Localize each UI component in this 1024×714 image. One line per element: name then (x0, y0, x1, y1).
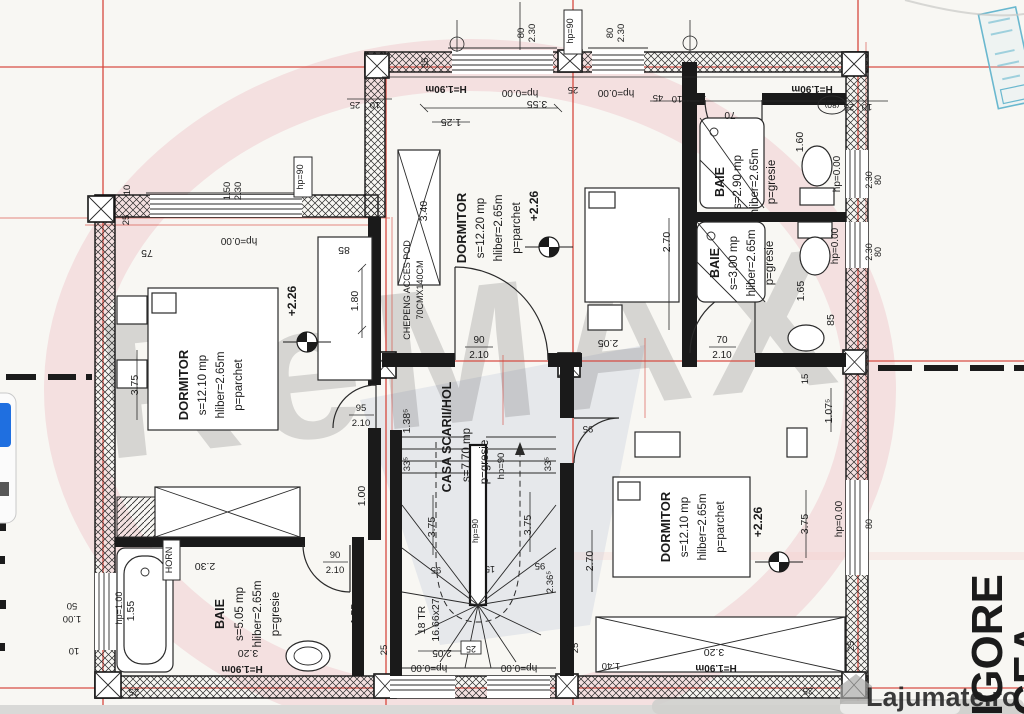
window-bottom-b (487, 676, 550, 698)
dim-label: 75 (141, 247, 153, 259)
room-height: hliber=2.65m (697, 494, 709, 561)
dim-label: 10 (122, 185, 133, 196)
dim-label: 95 (535, 560, 546, 571)
door-size: 2.10 (352, 418, 371, 429)
wardrobe-left (318, 237, 372, 380)
street-text-2: CEA (1005, 623, 1024, 714)
stair-count: 18 TR (416, 605, 428, 634)
dim-label: 2.05 (598, 337, 619, 349)
sill-label: hp=0.00 (597, 87, 634, 98)
stair-parapet-label: hp=90 (470, 519, 480, 543)
dim-label: 15 (696, 93, 707, 104)
door-size: 90 (330, 550, 341, 561)
dim-label: 1.40 (602, 660, 621, 671)
dim-label: 1.80 (349, 291, 361, 312)
sill-label: hp=0.00 (501, 87, 538, 98)
dim-label: 25 (568, 84, 579, 95)
dim-label: 10 (862, 101, 873, 112)
dim-label: 3.20 (704, 646, 725, 658)
sill-label: hp=0.00 (220, 235, 257, 246)
room-name: BAIE (708, 248, 722, 278)
chimney-label: HORN (164, 547, 174, 574)
headroom-label: H=1.90m (695, 662, 737, 673)
room-name: BAIE (713, 167, 727, 197)
radiator (787, 428, 807, 457)
dim-label: 3.75 (129, 375, 141, 396)
sill-label: hp=0.00 (410, 662, 447, 673)
dim-label: 1.50 (222, 182, 233, 201)
headroom-label: H=1.90m (425, 83, 467, 94)
window-size: 80 (516, 28, 527, 39)
dim-label: 35 (420, 58, 431, 69)
dim-label: 15 (485, 564, 495, 574)
sill-label: hp=0.00 (834, 500, 845, 537)
dim-label: 25 (129, 686, 140, 697)
dim-label: (80) (824, 100, 839, 110)
room-area: s=7.70 mp (461, 428, 473, 482)
door-size: 70 (724, 109, 736, 120)
dim-label: 2.10 (672, 93, 691, 104)
dim-label: 1.65 (795, 281, 807, 302)
room-floor: p=gresie (479, 440, 491, 484)
dim-label: 1.07⁵ (823, 399, 835, 424)
dim-label: 2.30 (195, 560, 216, 572)
room-area: s=12.20 mp (475, 198, 487, 258)
parapet-label: hp=90 (565, 18, 575, 43)
dim-label: 25 (379, 645, 390, 656)
dim-label: 3.20 (238, 647, 259, 659)
dim-label: 1.00 (356, 486, 368, 507)
room-floor: p=gresie (766, 160, 778, 204)
dim-label: 1.25 (441, 116, 462, 128)
dim-label: 95 (431, 564, 442, 575)
room-height: hliber=2.65m (493, 195, 505, 262)
popup-icon (0, 482, 9, 496)
attic-access-label: 70CMX140CM (415, 260, 425, 319)
dim-label: 85 (825, 314, 837, 326)
window-bottom-a (390, 676, 455, 698)
dim-label: 25 (570, 643, 581, 654)
dim-label: 25 (803, 685, 814, 696)
room-area: s=3.00 mp (728, 236, 740, 290)
sink-mid (788, 325, 824, 351)
window-top-b (588, 48, 648, 74)
door-size: 70 (716, 335, 728, 346)
dim-label: 2.70 (584, 551, 596, 572)
dim-label: 10 (370, 99, 381, 110)
parapet-label: hp=90 (295, 164, 305, 189)
dim-label: 3.75 (522, 515, 534, 536)
door-size: 2.10 (469, 350, 489, 361)
popup-blue-button[interactable] (0, 403, 11, 447)
toilet-mid (798, 222, 832, 275)
room-floor: p=gresie (764, 241, 776, 285)
room-level: +2.26 (285, 285, 299, 316)
dim-label: 2.30 (233, 182, 244, 201)
room-name: DORMITOR (454, 192, 469, 263)
room-level: +2.26 (527, 190, 541, 221)
headroom-label: H=1.90m (791, 83, 833, 94)
sill-label: hp=0.00 (830, 227, 841, 264)
room-area: s=12.10 mp (197, 355, 209, 415)
room-name: CASA SCARII/HOL (440, 381, 454, 492)
door-size: 2.10 (712, 350, 732, 361)
room-level: +2.26 (751, 506, 765, 537)
door-size: 2.10 (326, 565, 345, 576)
dim-label: 33⁵ (543, 457, 554, 472)
toilet-top (800, 146, 834, 205)
parapet-label: hp=90 (496, 453, 507, 480)
window-size: 2.30 (527, 24, 538, 43)
room-name: DORMITOR (176, 349, 191, 420)
stair-tread-size: 16.66x27 (430, 598, 442, 641)
dim-label: 3.75 (426, 517, 438, 538)
dim-label: 15 (800, 374, 811, 385)
door-size: 95 (356, 403, 367, 414)
dim-label: 1.38⁵ (401, 409, 413, 434)
dim-label: 25 (466, 644, 476, 654)
dim-label: 3.40 (418, 201, 430, 222)
window-size: 80 (873, 247, 883, 257)
room-height: hliber=2.65m (215, 352, 227, 419)
dim-label: 3.55 (527, 98, 548, 110)
room-floor: p=parchet (511, 201, 523, 253)
room-floor: p=parchet (715, 500, 727, 552)
sill-label: hp=1.00 (114, 592, 124, 625)
dim-label: 50 (67, 600, 78, 611)
dim-label: 25 (121, 215, 132, 226)
window-size: 80 (864, 519, 874, 529)
room-area: s=2.90 mp (732, 155, 744, 209)
dim-label: 1.55 (125, 601, 137, 622)
dim-label: 25 (844, 101, 855, 112)
sill-label: hp=0.00 (832, 155, 843, 192)
room-height: hliber=2.65m (746, 230, 758, 297)
room-floor: p=gresie (270, 592, 282, 636)
dim-label: 85 (338, 244, 350, 256)
dim-label: 2.70 (661, 232, 673, 253)
dim-label: 10 (69, 645, 80, 656)
room-area: s=12.10 mp (679, 497, 691, 557)
door-size: 90 (473, 335, 485, 346)
room-height: hliber=2.65m (749, 149, 761, 216)
dim-label: 33⁵ (402, 457, 413, 472)
sill-label: hp=0.00 (500, 662, 537, 673)
sink-bottom (286, 641, 330, 671)
headroom-label: H=1.90m (221, 663, 263, 674)
room-area: s=5.05 mp (234, 587, 246, 641)
door-size: 95 (583, 423, 594, 434)
left-edge-popup[interactable] (0, 393, 16, 523)
dim-label: 3.75 (799, 514, 811, 535)
dim-label: 25 (350, 99, 361, 110)
dim-label: 2.05 (432, 647, 452, 658)
room-height: hliber=2.65m (252, 581, 264, 648)
dim-label: 45 (653, 92, 664, 103)
dim-label: 1.60 (794, 132, 806, 153)
window-top-a (448, 48, 557, 74)
room-name: DORMITOR (658, 491, 673, 562)
window-size: 2.30 (616, 24, 627, 43)
dim-label: 1.00 (63, 613, 82, 624)
attic-access-label: CHEPENG ACCES POD (402, 240, 412, 340)
window-size: 80 (605, 28, 616, 39)
dim-label: 2.36⁵ (545, 571, 556, 593)
floor-plan-scan: ReMAX (0, 0, 1024, 714)
window-size: 80 (873, 175, 883, 185)
room-name: BAIE (213, 599, 227, 629)
room-floor: p=parchet (233, 358, 245, 410)
dim-label: 25 (846, 641, 857, 652)
dim-label: 1.55 (349, 604, 361, 625)
